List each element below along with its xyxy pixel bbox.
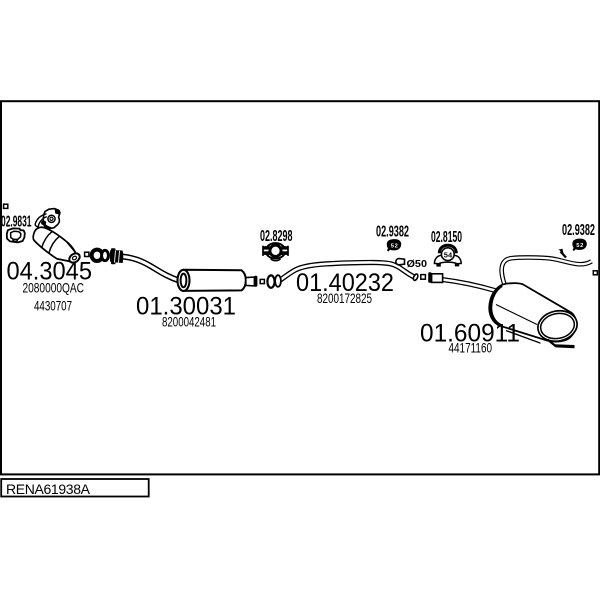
svg-text:52: 52: [576, 243, 583, 249]
svg-text:8200042481: 8200042481: [162, 314, 216, 329]
svg-text:RENA61938A: RENA61938A: [6, 481, 91, 497]
svg-text:Ø50: Ø50: [407, 259, 428, 270]
svg-text:44171160: 44171160: [449, 340, 493, 355]
svg-text:52: 52: [391, 243, 398, 249]
svg-text:54: 54: [444, 250, 453, 259]
svg-text:02.9831: 02.9831: [1, 213, 32, 230]
svg-text:02.9382: 02.9382: [376, 223, 409, 240]
svg-text:2080000QAC: 2080000QAC: [23, 279, 85, 295]
svg-text:8200172825: 8200172825: [317, 291, 372, 306]
svg-text:02.8298: 02.8298: [260, 228, 293, 245]
svg-text:02.8150: 02.8150: [431, 229, 462, 246]
svg-text:02.9382: 02.9382: [562, 222, 595, 239]
svg-text:4430707: 4430707: [34, 297, 72, 313]
